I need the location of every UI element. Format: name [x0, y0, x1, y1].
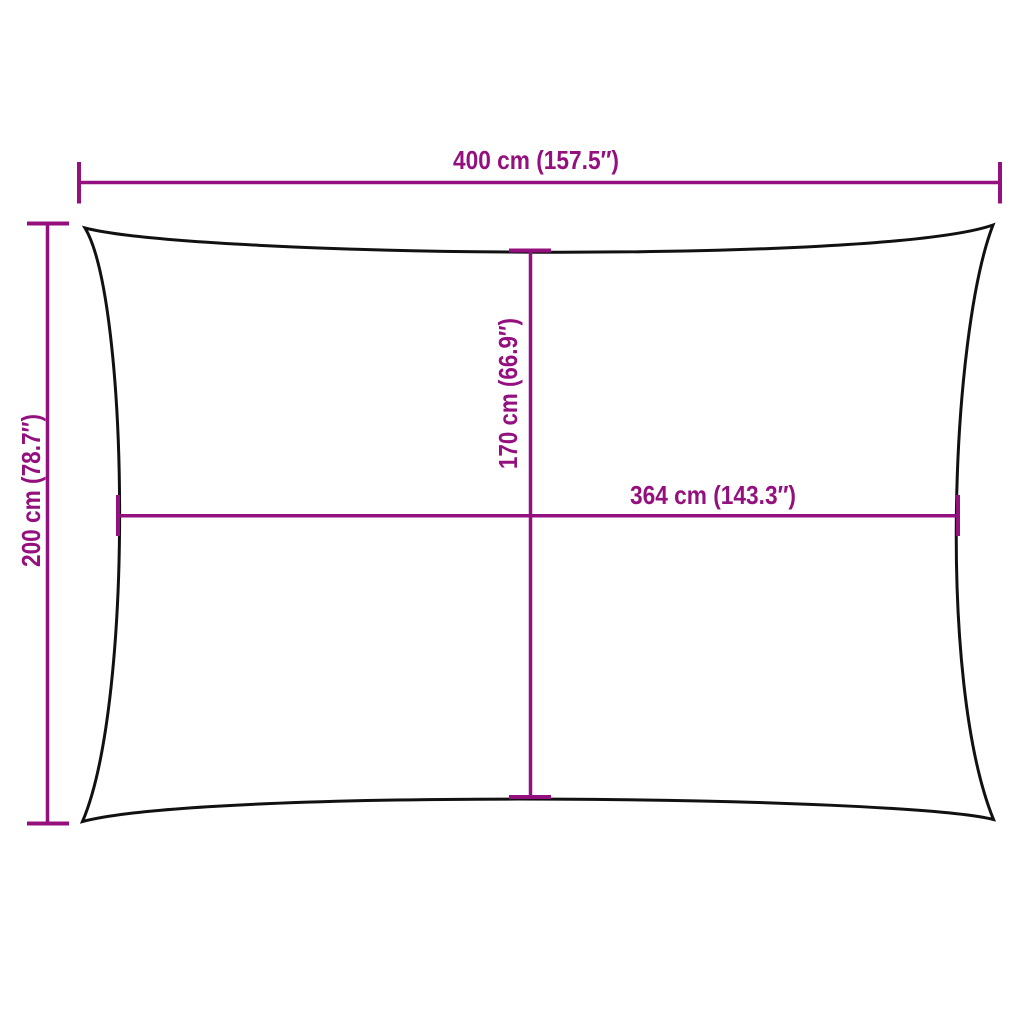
svg-text:364 cm (143.3″): 364 cm (143.3″) — [630, 480, 796, 510]
svg-text:400 cm (157.5″): 400 cm (157.5″) — [453, 145, 619, 175]
svg-text:170 cm (66.9″): 170 cm (66.9″) — [493, 318, 523, 469]
svg-text:200 cm (78.7″): 200 cm (78.7″) — [16, 414, 46, 567]
